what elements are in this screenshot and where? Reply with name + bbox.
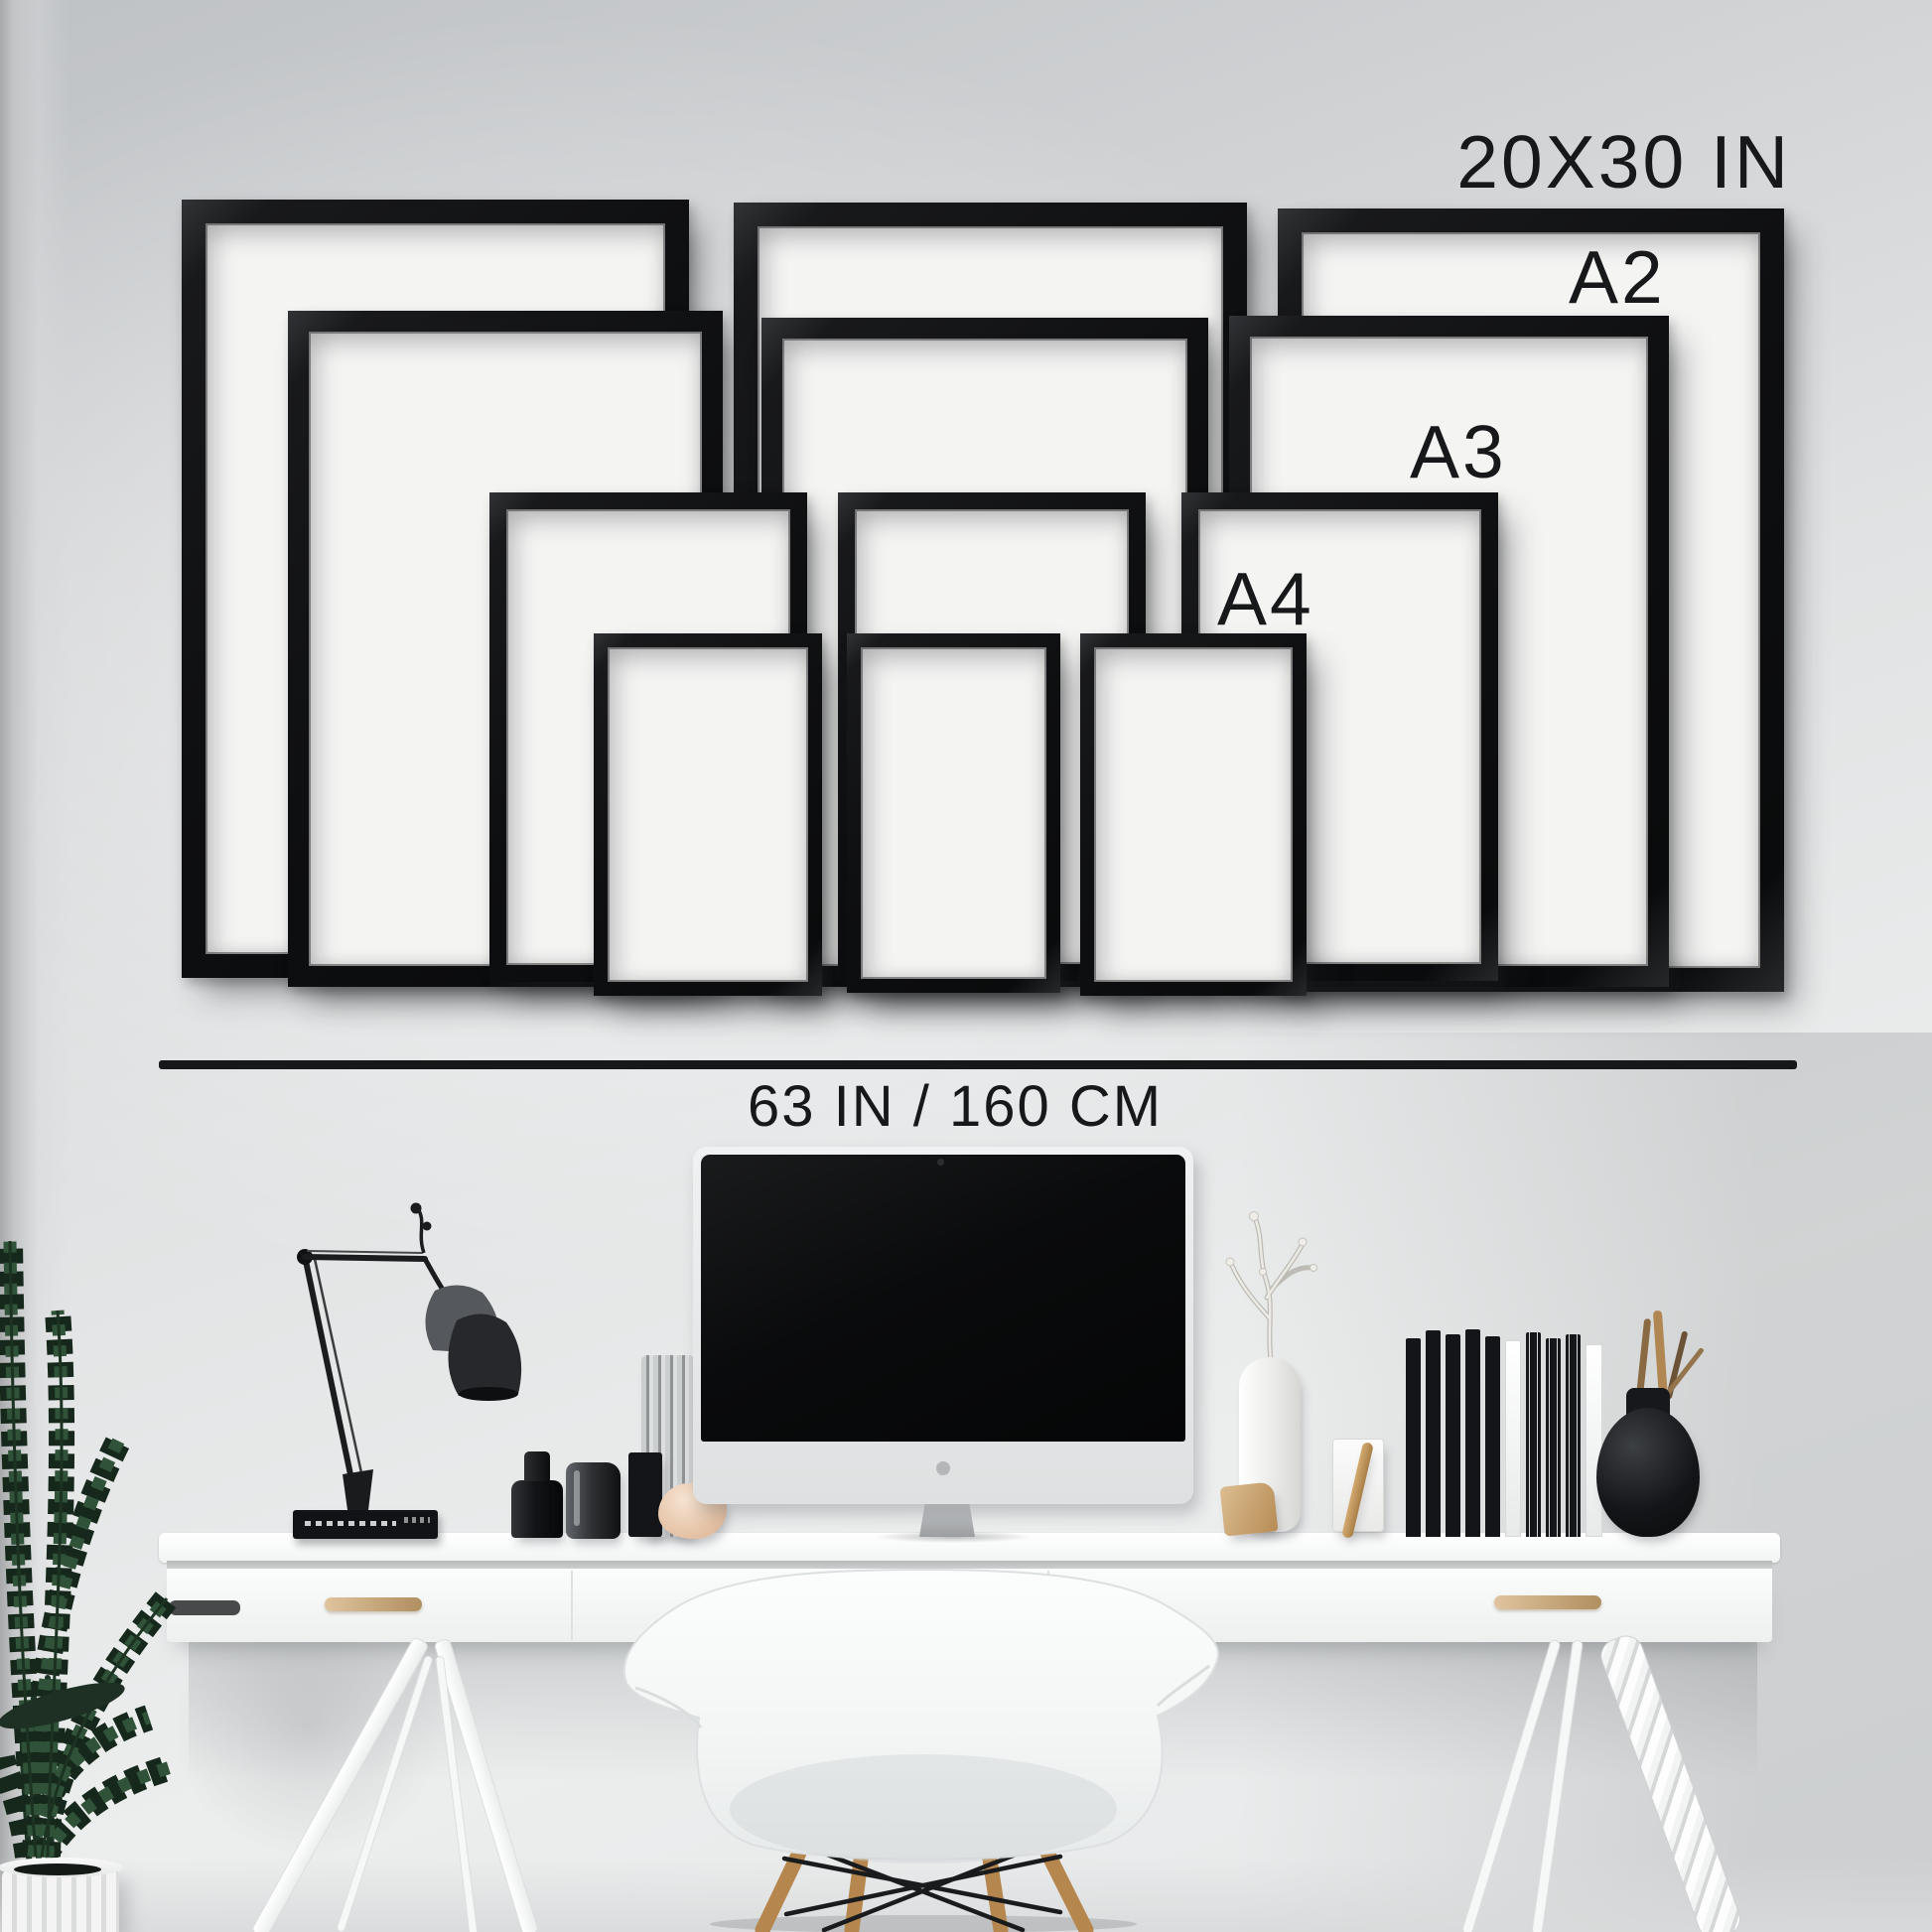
organizer-divider (1586, 1344, 1602, 1537)
label-size-a4: A4 (1217, 562, 1314, 636)
label-size-a3: A3 (1410, 415, 1507, 489)
organizer-slat (1426, 1330, 1441, 1537)
drawer-handle-right (1494, 1595, 1601, 1609)
frame-paper (861, 647, 1046, 979)
imac-camera-dot (937, 1159, 944, 1166)
white-eames-armchair (596, 1549, 1251, 1932)
woven-white-planter (2, 1869, 119, 1932)
frame-paper (608, 647, 808, 982)
frame-a4-middle (847, 633, 1060, 993)
frame-a4-left (594, 633, 822, 996)
organizer-slat (1465, 1329, 1480, 1537)
round-black-vase (1596, 1408, 1700, 1537)
organizer-slat (1406, 1338, 1421, 1537)
dark-glass-vase (566, 1462, 621, 1539)
organizer-slat (1526, 1332, 1541, 1537)
label-size-a2: A2 (1569, 240, 1666, 315)
size-guide-mockup: 20X30 IN A2 A3 A4 63 IN / 160 CM (0, 0, 1932, 1932)
black-pen-cup (628, 1452, 662, 1537)
black-record-organizer (1406, 1328, 1602, 1537)
frame-a4-right (1080, 633, 1307, 996)
wood-wedge (1220, 1481, 1279, 1536)
imac-stand (919, 1504, 975, 1537)
frame-paper (1094, 647, 1293, 982)
drawer-handle-left (325, 1597, 422, 1611)
matte-black-bottle (511, 1480, 563, 1538)
organizer-divider (1505, 1340, 1522, 1537)
width-measurement-line (159, 1060, 1797, 1069)
potted-plant (0, 1181, 199, 1932)
organizer-slat (1446, 1334, 1460, 1537)
imac-logo-dot (936, 1461, 950, 1475)
imac-screen (701, 1155, 1185, 1442)
organizer-slat (1546, 1338, 1561, 1537)
width-measurement-label: 63 IN / 160 CM (748, 1078, 1163, 1136)
label-size-20x30in: 20X30 IN (1456, 125, 1791, 200)
organizer-slat (1485, 1336, 1500, 1537)
drawer-seam (571, 1571, 573, 1640)
organizer-slat (1566, 1334, 1581, 1537)
